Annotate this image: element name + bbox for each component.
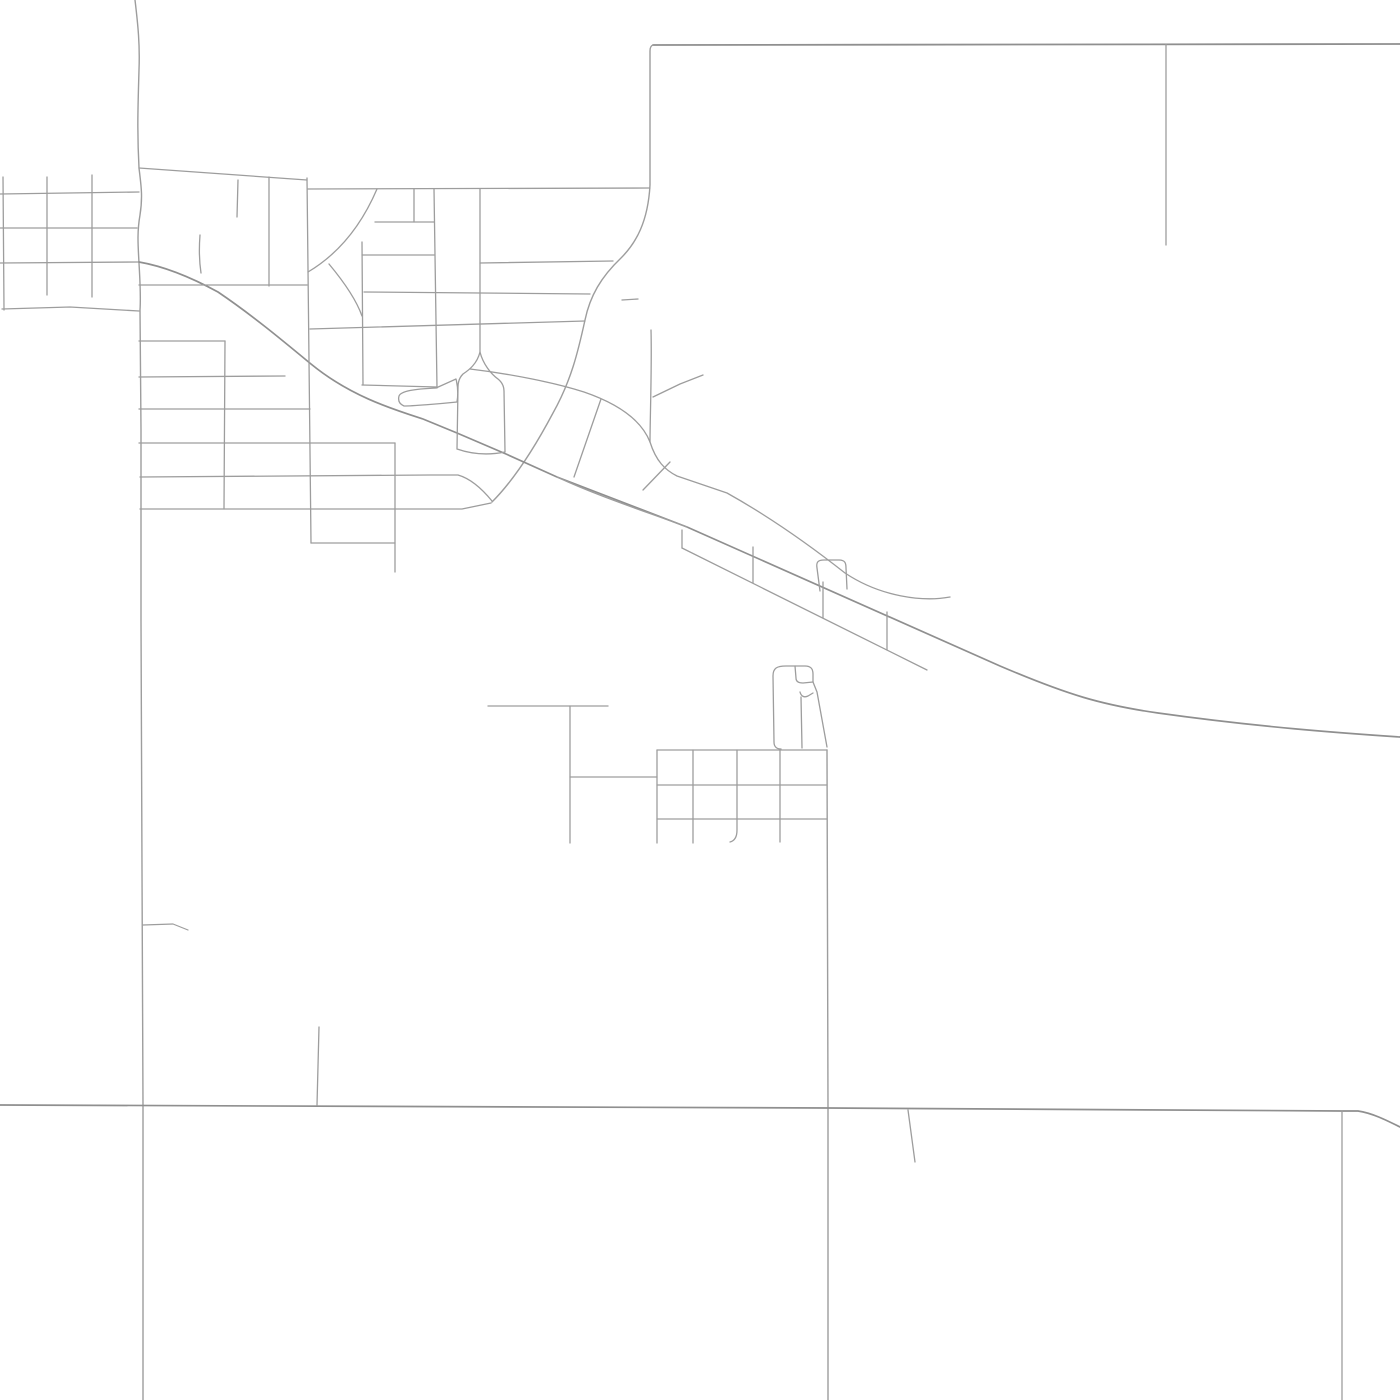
small-squiggle-road <box>199 235 201 273</box>
mid-horizontal-329 <box>310 321 585 329</box>
building-shape-notch <box>795 666 813 683</box>
nw-grid-h3 <box>0 262 139 263</box>
building-shape-inner-v <box>801 697 802 748</box>
pond-outline <box>399 379 458 406</box>
boundary-west-scurve-road <box>492 45 653 502</box>
nw-grid-h4 <box>2 307 139 311</box>
mid-horizontal-385 <box>362 385 437 387</box>
north-box-inner-v1 <box>237 180 238 217</box>
small-arc-road <box>329 264 362 316</box>
nw-grid-h1 <box>0 192 139 194</box>
hook-lower-road <box>140 503 491 509</box>
mid-north-horizontal-road <box>308 188 650 189</box>
map-viewport <box>0 0 1400 1400</box>
west-branch-road <box>143 924 188 930</box>
bottom-section-road <box>0 1105 1400 1127</box>
bottom-stub-317 <box>317 1027 319 1105</box>
ne-branch-road <box>653 375 703 397</box>
frontage-road <box>650 442 950 599</box>
stub-road-651 <box>650 330 651 442</box>
sw-grid-v-225 <box>224 341 225 509</box>
mid-vertical-434 <box>434 189 437 388</box>
sw-grid-h-377 <box>139 376 285 377</box>
west-boundary-wavy-road <box>135 0 143 1400</box>
bulb-upper-arc-road <box>470 369 650 442</box>
mid-horizontal-263 <box>480 261 613 263</box>
small-dash-road <box>622 299 638 300</box>
bottom-stub-908 <box>908 1110 915 1162</box>
balloon-loop-road <box>457 352 505 454</box>
north-box-top-road <box>139 168 307 180</box>
main-highway <box>139 262 1400 737</box>
bulb-hatch-2 <box>643 462 670 490</box>
mid-vertical-362 <box>362 242 363 385</box>
nw-grid-v1 <box>3 177 4 310</box>
south-grid-v3 <box>730 750 737 842</box>
road-map-canvas <box>0 0 1400 1400</box>
ladder-lower-road <box>682 548 927 670</box>
hook-upper-road <box>140 475 492 501</box>
bulb-hatch-1 <box>574 399 601 477</box>
building-shape-outline <box>773 666 813 749</box>
long-south-vertical-road <box>827 750 828 1400</box>
quarter-arc-road <box>308 189 377 272</box>
mid-horizontal-291 <box>364 292 590 294</box>
building-shape-right-edge <box>813 682 827 747</box>
building-shape-hook <box>800 692 813 697</box>
boundary-top-road <box>653 44 1400 45</box>
